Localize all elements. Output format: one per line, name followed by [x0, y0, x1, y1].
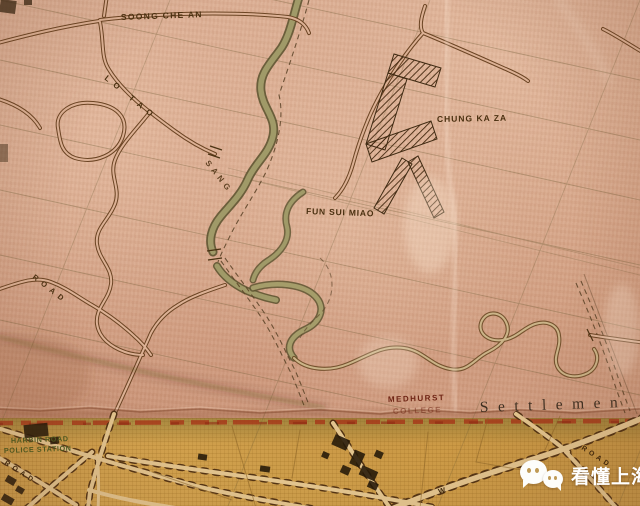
label-college: COLLEGE	[393, 405, 442, 416]
label-soong-che-an: SOONG CHE AN	[121, 9, 203, 22]
label-lo-tao-road: LO TAO	[103, 74, 160, 122]
label-police-station: POLICE STATION	[4, 444, 72, 455]
label-sang-creek: SANG	[203, 159, 234, 195]
grid-lines	[0, 0, 640, 506]
label-chung-ka-za: CHUNG KA ZA	[437, 113, 507, 124]
historical-map: SOONG CHE AN LO TAO SANG CHUNG KA ZA FUN…	[0, 0, 640, 506]
watermark-text: 看懂上海	[571, 462, 640, 489]
wechat-logo-icon	[520, 458, 566, 492]
chat-bubble-small	[543, 470, 563, 488]
edge-buildings	[0, 0, 32, 162]
map-canvas: SOONG CHE AN LO TAO SANG CHUNG KA ZA FUN…	[0, 0, 640, 506]
settlement-boundary-line	[0, 421, 640, 424]
label-medhurst: MEDHURST	[388, 393, 446, 404]
watermark: 看懂上海	[520, 458, 640, 492]
label-fun-sui-miao: FUN SUI MIAO	[306, 206, 374, 218]
label-settlement: Settlemen	[480, 394, 628, 416]
